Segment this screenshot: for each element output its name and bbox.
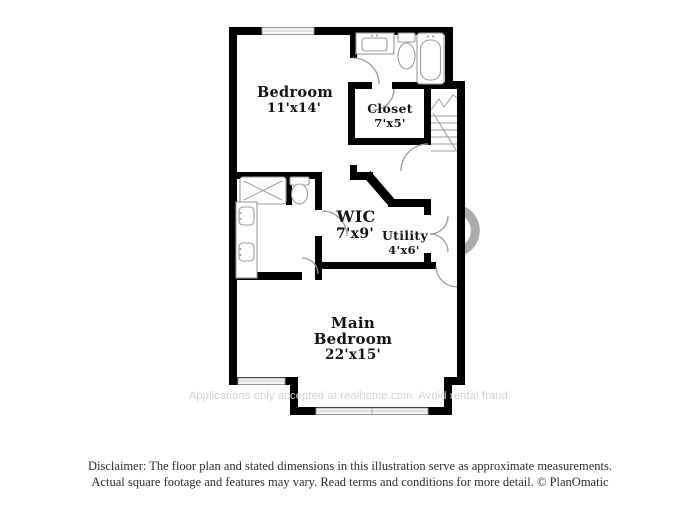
sink-vanity-icon bbox=[356, 33, 394, 54]
window bbox=[238, 378, 285, 385]
disclaimer-line-2: Actual square footage and features may v… bbox=[0, 475, 700, 491]
double-vanity-icon bbox=[236, 202, 257, 278]
door-arc bbox=[430, 234, 448, 252]
room-label-utility: Utility bbox=[382, 228, 428, 243]
door-arc bbox=[430, 216, 448, 234]
room-label-bedroom: Bedroom bbox=[257, 84, 333, 101]
bathtub-icon bbox=[417, 33, 444, 84]
floorplan-page: Bedroom 11'x14' Closet 7'x5' WIC 7'x9' U… bbox=[0, 0, 700, 509]
toilet-icon bbox=[398, 33, 415, 69]
room-dims-wic: 7'x9' bbox=[336, 226, 374, 242]
disclaimer-line-1: Disclaimer: The floor plan and stated di… bbox=[0, 459, 700, 475]
room-dims-bedroom: 11'x14' bbox=[267, 101, 321, 116]
door-arc bbox=[401, 144, 428, 171]
door-arc bbox=[353, 58, 379, 84]
room-dims-utility: 4'x6' bbox=[388, 243, 419, 257]
room-label-main-bedroom-line2: Bedroom bbox=[314, 330, 393, 348]
window bbox=[316, 408, 428, 415]
floor-plan-drawing: Bedroom 11'x14' Closet 7'x5' WIC 7'x9' U… bbox=[0, 0, 700, 509]
room-dims-closet: 7'x5' bbox=[374, 116, 405, 130]
room-label-closet: Closet bbox=[367, 101, 413, 116]
toilet-icon bbox=[290, 177, 309, 204]
disclaimer: Disclaimer: The floor plan and stated di… bbox=[0, 459, 700, 490]
shower-icon bbox=[240, 177, 286, 204]
window bbox=[262, 28, 314, 35]
stairs-icon bbox=[431, 95, 457, 151]
door-arc bbox=[436, 266, 457, 287]
room-label-wic: WIC bbox=[335, 207, 375, 226]
watermark-text: Applications only accepted at realhome.c… bbox=[0, 390, 700, 402]
room-dims-main-bedroom: 22'x15' bbox=[325, 347, 381, 363]
